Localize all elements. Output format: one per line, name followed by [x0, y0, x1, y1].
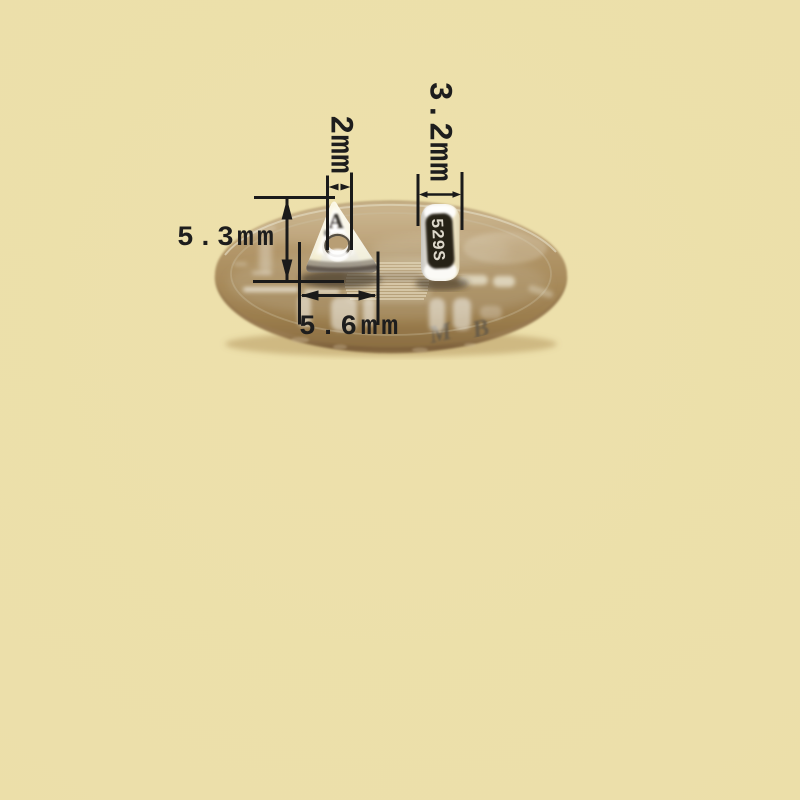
svg-text:A: A [329, 209, 345, 233]
svg-text:5.3mm: 5.3mm [177, 223, 277, 254]
svg-text:529S: 529S [426, 218, 447, 262]
svg-text:3.2mm: 3.2mm [421, 82, 458, 183]
svg-text:5.6mm: 5.6mm [299, 312, 402, 343]
svg-text:2mm: 2mm [322, 115, 359, 174]
